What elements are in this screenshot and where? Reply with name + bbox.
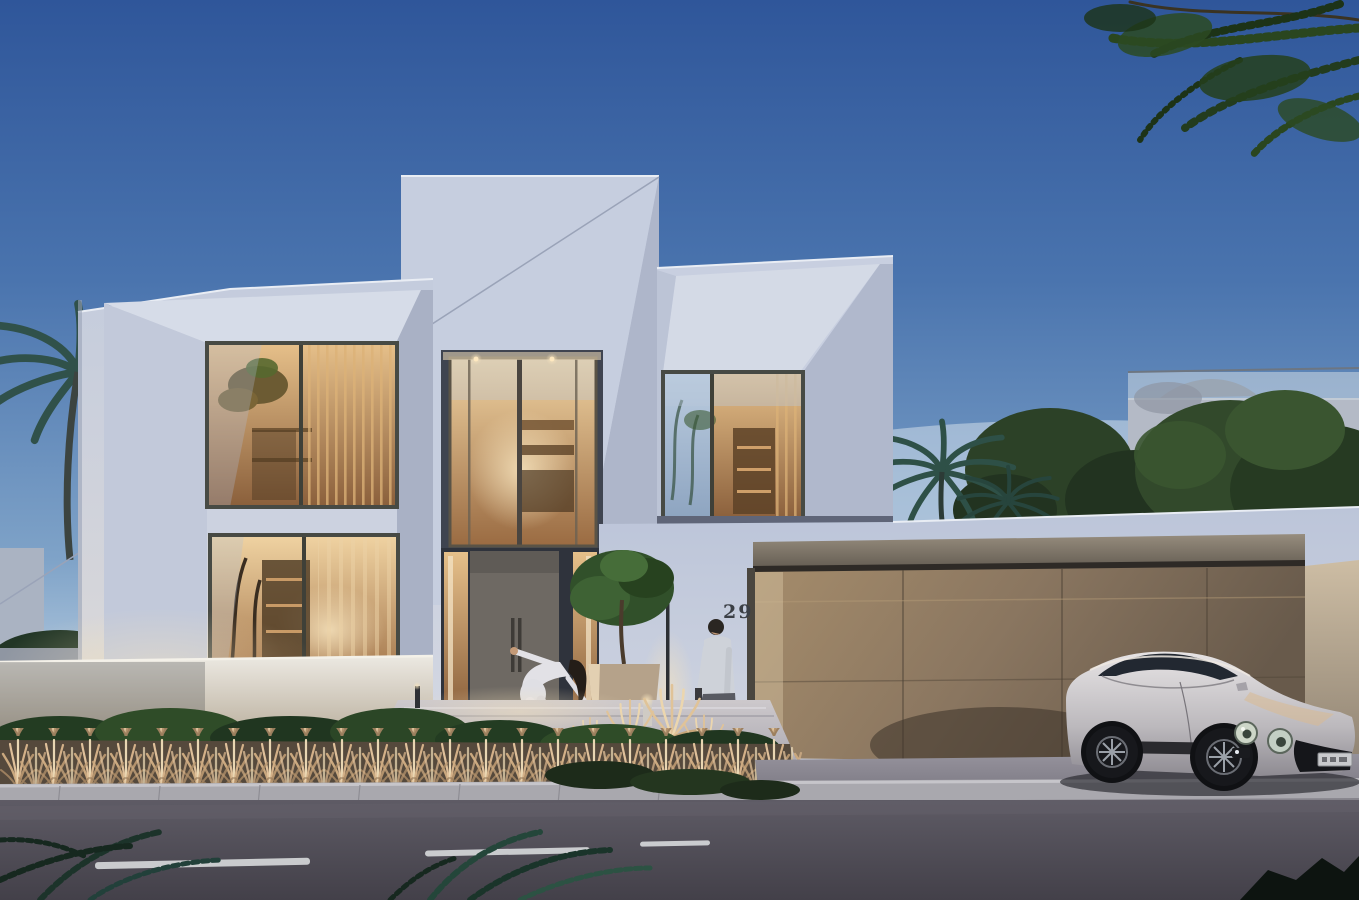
car-wheel-rear <box>1086 726 1138 778</box>
spandrel <box>207 505 397 535</box>
tower-window <box>441 350 603 550</box>
road <box>0 798 1359 900</box>
door-handle <box>511 618 515 672</box>
upper-left-window <box>207 343 397 507</box>
license-plate <box>1318 753 1352 766</box>
right-volume-window <box>663 372 803 520</box>
right-volume <box>657 256 893 524</box>
architectural-render-image: 29 <box>0 0 1359 900</box>
house-number: 29 <box>723 601 753 623</box>
